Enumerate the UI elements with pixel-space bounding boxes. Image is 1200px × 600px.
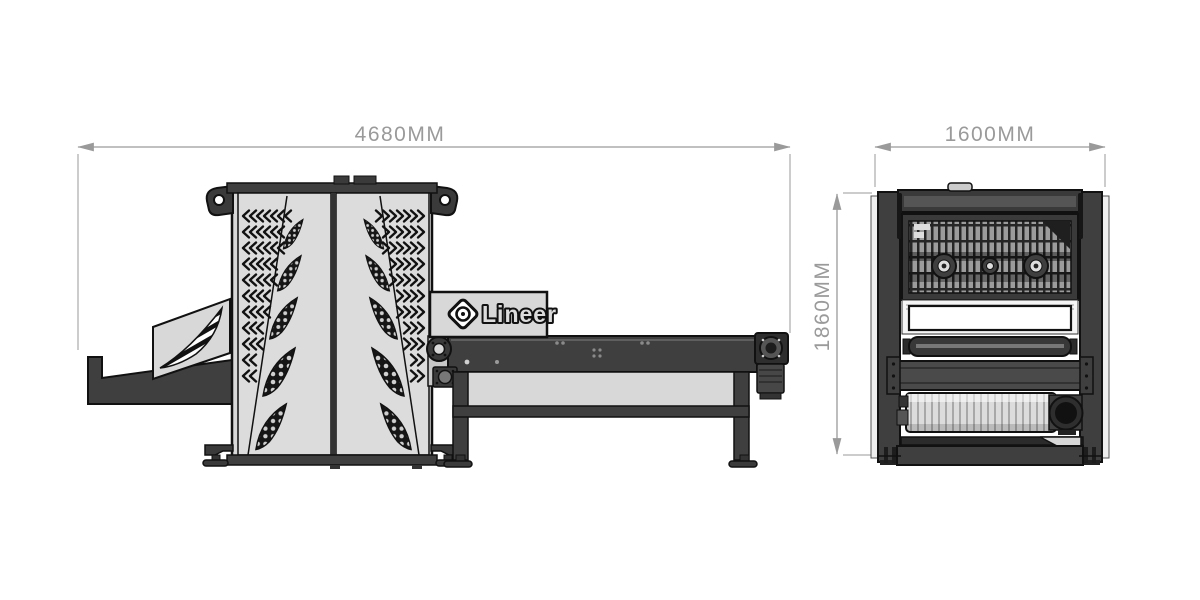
winding-drum [897, 393, 1056, 432]
inspection-window [909, 306, 1071, 330]
conveyor-foot [444, 461, 472, 467]
head-bearing [427, 337, 451, 361]
pressure-roller [903, 337, 1077, 356]
door-split [331, 193, 336, 455]
top-rail-inner [904, 196, 1076, 207]
base-frame [880, 437, 1100, 465]
technical-drawing-canvas: 4680MM [0, 0, 1200, 600]
front-overall-width-label: 1600MM [945, 123, 1036, 146]
mesh-guard [902, 214, 1078, 300]
front-width-dimension: 1600MM [875, 123, 1105, 187]
frame-column-right [1080, 192, 1102, 462]
machine-cabinet [203, 176, 461, 469]
side-view: 4680MM [78, 123, 790, 469]
machine-drawing: 4680MM [0, 0, 1200, 600]
bottom-tab [412, 465, 422, 469]
drum-motor [1049, 395, 1083, 435]
drive-motor [755, 333, 788, 399]
conveyor-cross-beam [453, 406, 749, 417]
front-overall-height-label: 1860MM [811, 261, 834, 352]
front-body [871, 183, 1109, 465]
conveyor-side-panel [456, 372, 737, 407]
top-handle [948, 183, 972, 191]
outfeed-conveyor [427, 333, 788, 467]
bottom-tab [330, 465, 340, 469]
front-height-dimension: 1860MM [811, 193, 872, 455]
conveyor-belt-frame [448, 336, 757, 372]
side-flange-right [1102, 196, 1109, 458]
brand-plate: Lineer [430, 292, 557, 337]
support-beam [887, 357, 1093, 394]
roof-fitting [354, 176, 376, 184]
roof-fitting [334, 176, 349, 184]
cabinet-top-rail [227, 183, 437, 193]
brand-name-label: Lineer [482, 301, 557, 327]
front-view: 1600MM 1860MM [811, 123, 1109, 465]
conveyor-foot [729, 461, 757, 467]
side-overall-width-label: 4680MM [355, 123, 446, 146]
cabinet-bottom-rail [227, 455, 437, 465]
roller-end-bearings [932, 254, 1048, 278]
side-flange-left [871, 196, 878, 458]
